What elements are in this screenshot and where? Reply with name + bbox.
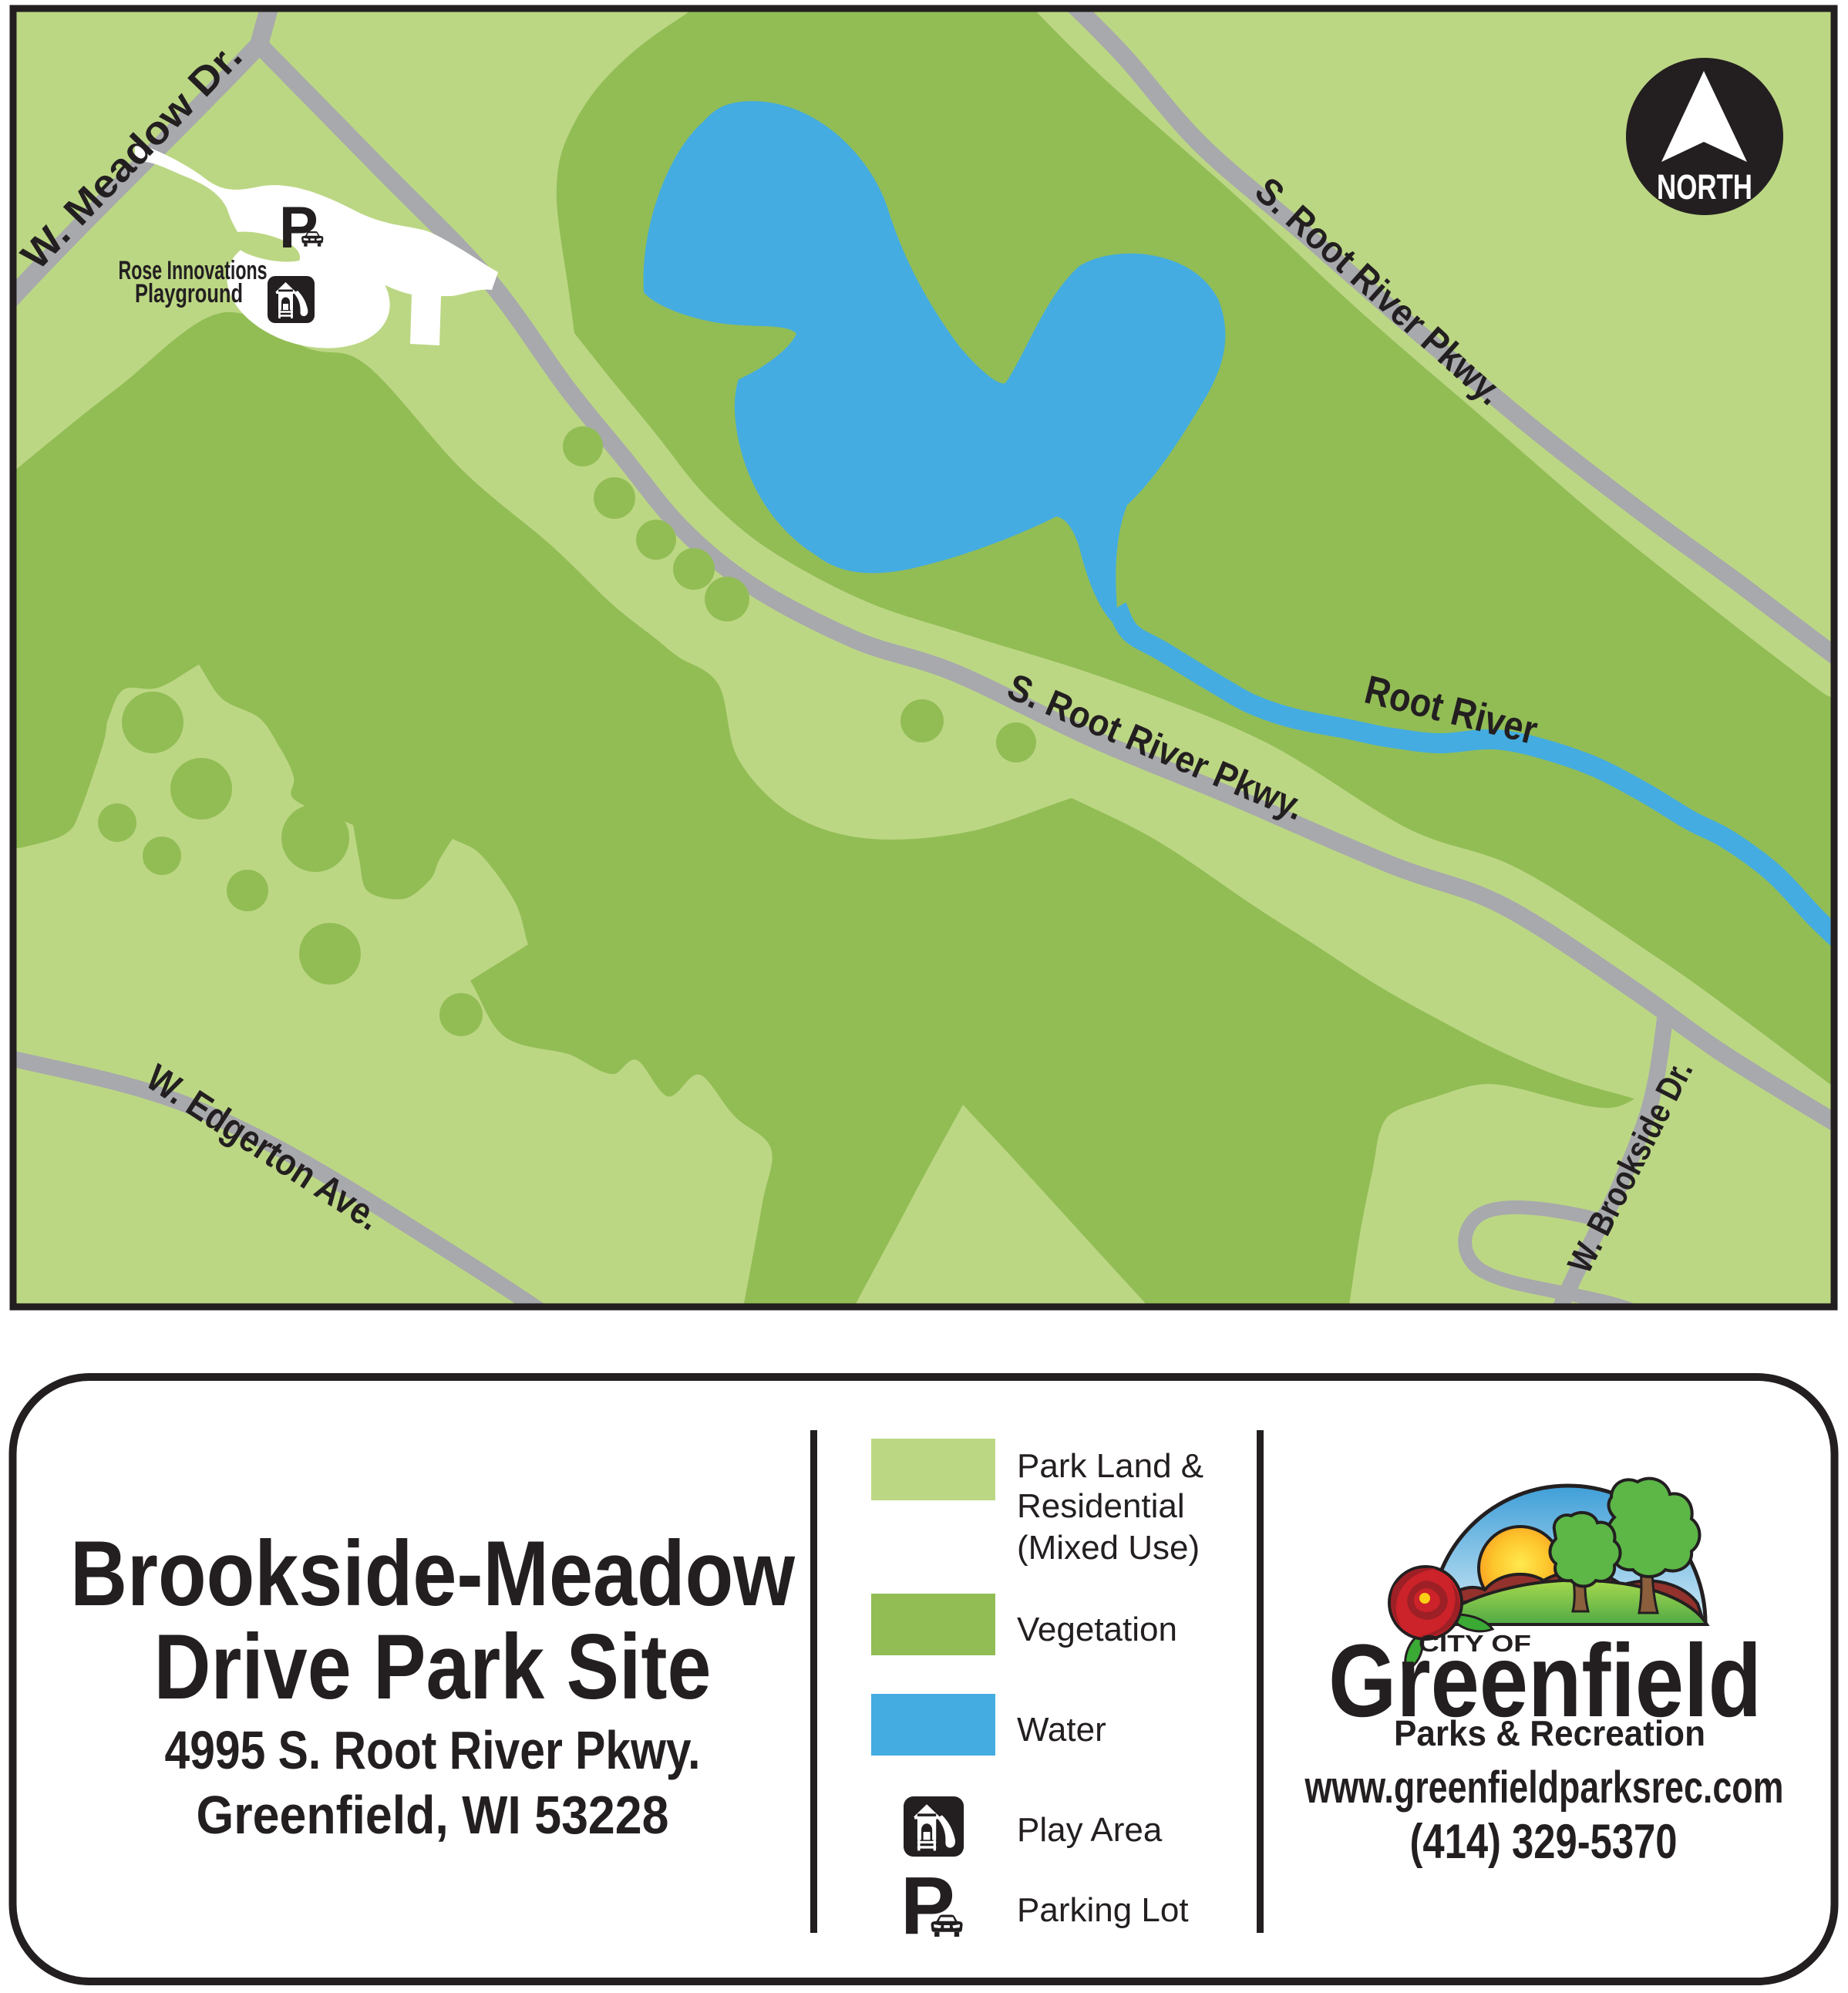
svg-text:(Mixed Use): (Mixed Use) (1017, 1529, 1200, 1567)
svg-text:P: P (900, 1860, 955, 1951)
svg-text:Park Land &: Park Land & (1017, 1447, 1203, 1485)
svg-text:Play Area: Play Area (1017, 1811, 1163, 1849)
svg-text:Parks & Recreation: Parks & Recreation (1394, 1713, 1705, 1753)
svg-text:Parking Lot: Parking Lot (1017, 1891, 1189, 1929)
svg-text:P: P (279, 195, 318, 261)
svg-text:Residential: Residential (1017, 1487, 1185, 1525)
svg-text:4995 S. Root River Pkwy.: 4995 S. Root River Pkwy. (165, 1720, 701, 1780)
svg-text:Playground: Playground (135, 279, 243, 308)
svg-text:Drive Park Site: Drive Park Site (154, 1615, 712, 1719)
svg-text:Vegetation: Vegetation (1017, 1611, 1177, 1648)
svg-text:www.greenfieldparksrec.com: www.greenfieldparksrec.com (1304, 1762, 1784, 1813)
svg-text:Greenfield, WI 53228: Greenfield, WI 53228 (197, 1785, 669, 1845)
svg-text:(414) 329-5370: (414) 329-5370 (1410, 1815, 1678, 1869)
svg-text:Water: Water (1017, 1711, 1106, 1749)
svg-text:Brookside-Meadow: Brookside-Meadow (70, 1522, 796, 1625)
svg-text:NORTH: NORTH (1657, 167, 1752, 207)
